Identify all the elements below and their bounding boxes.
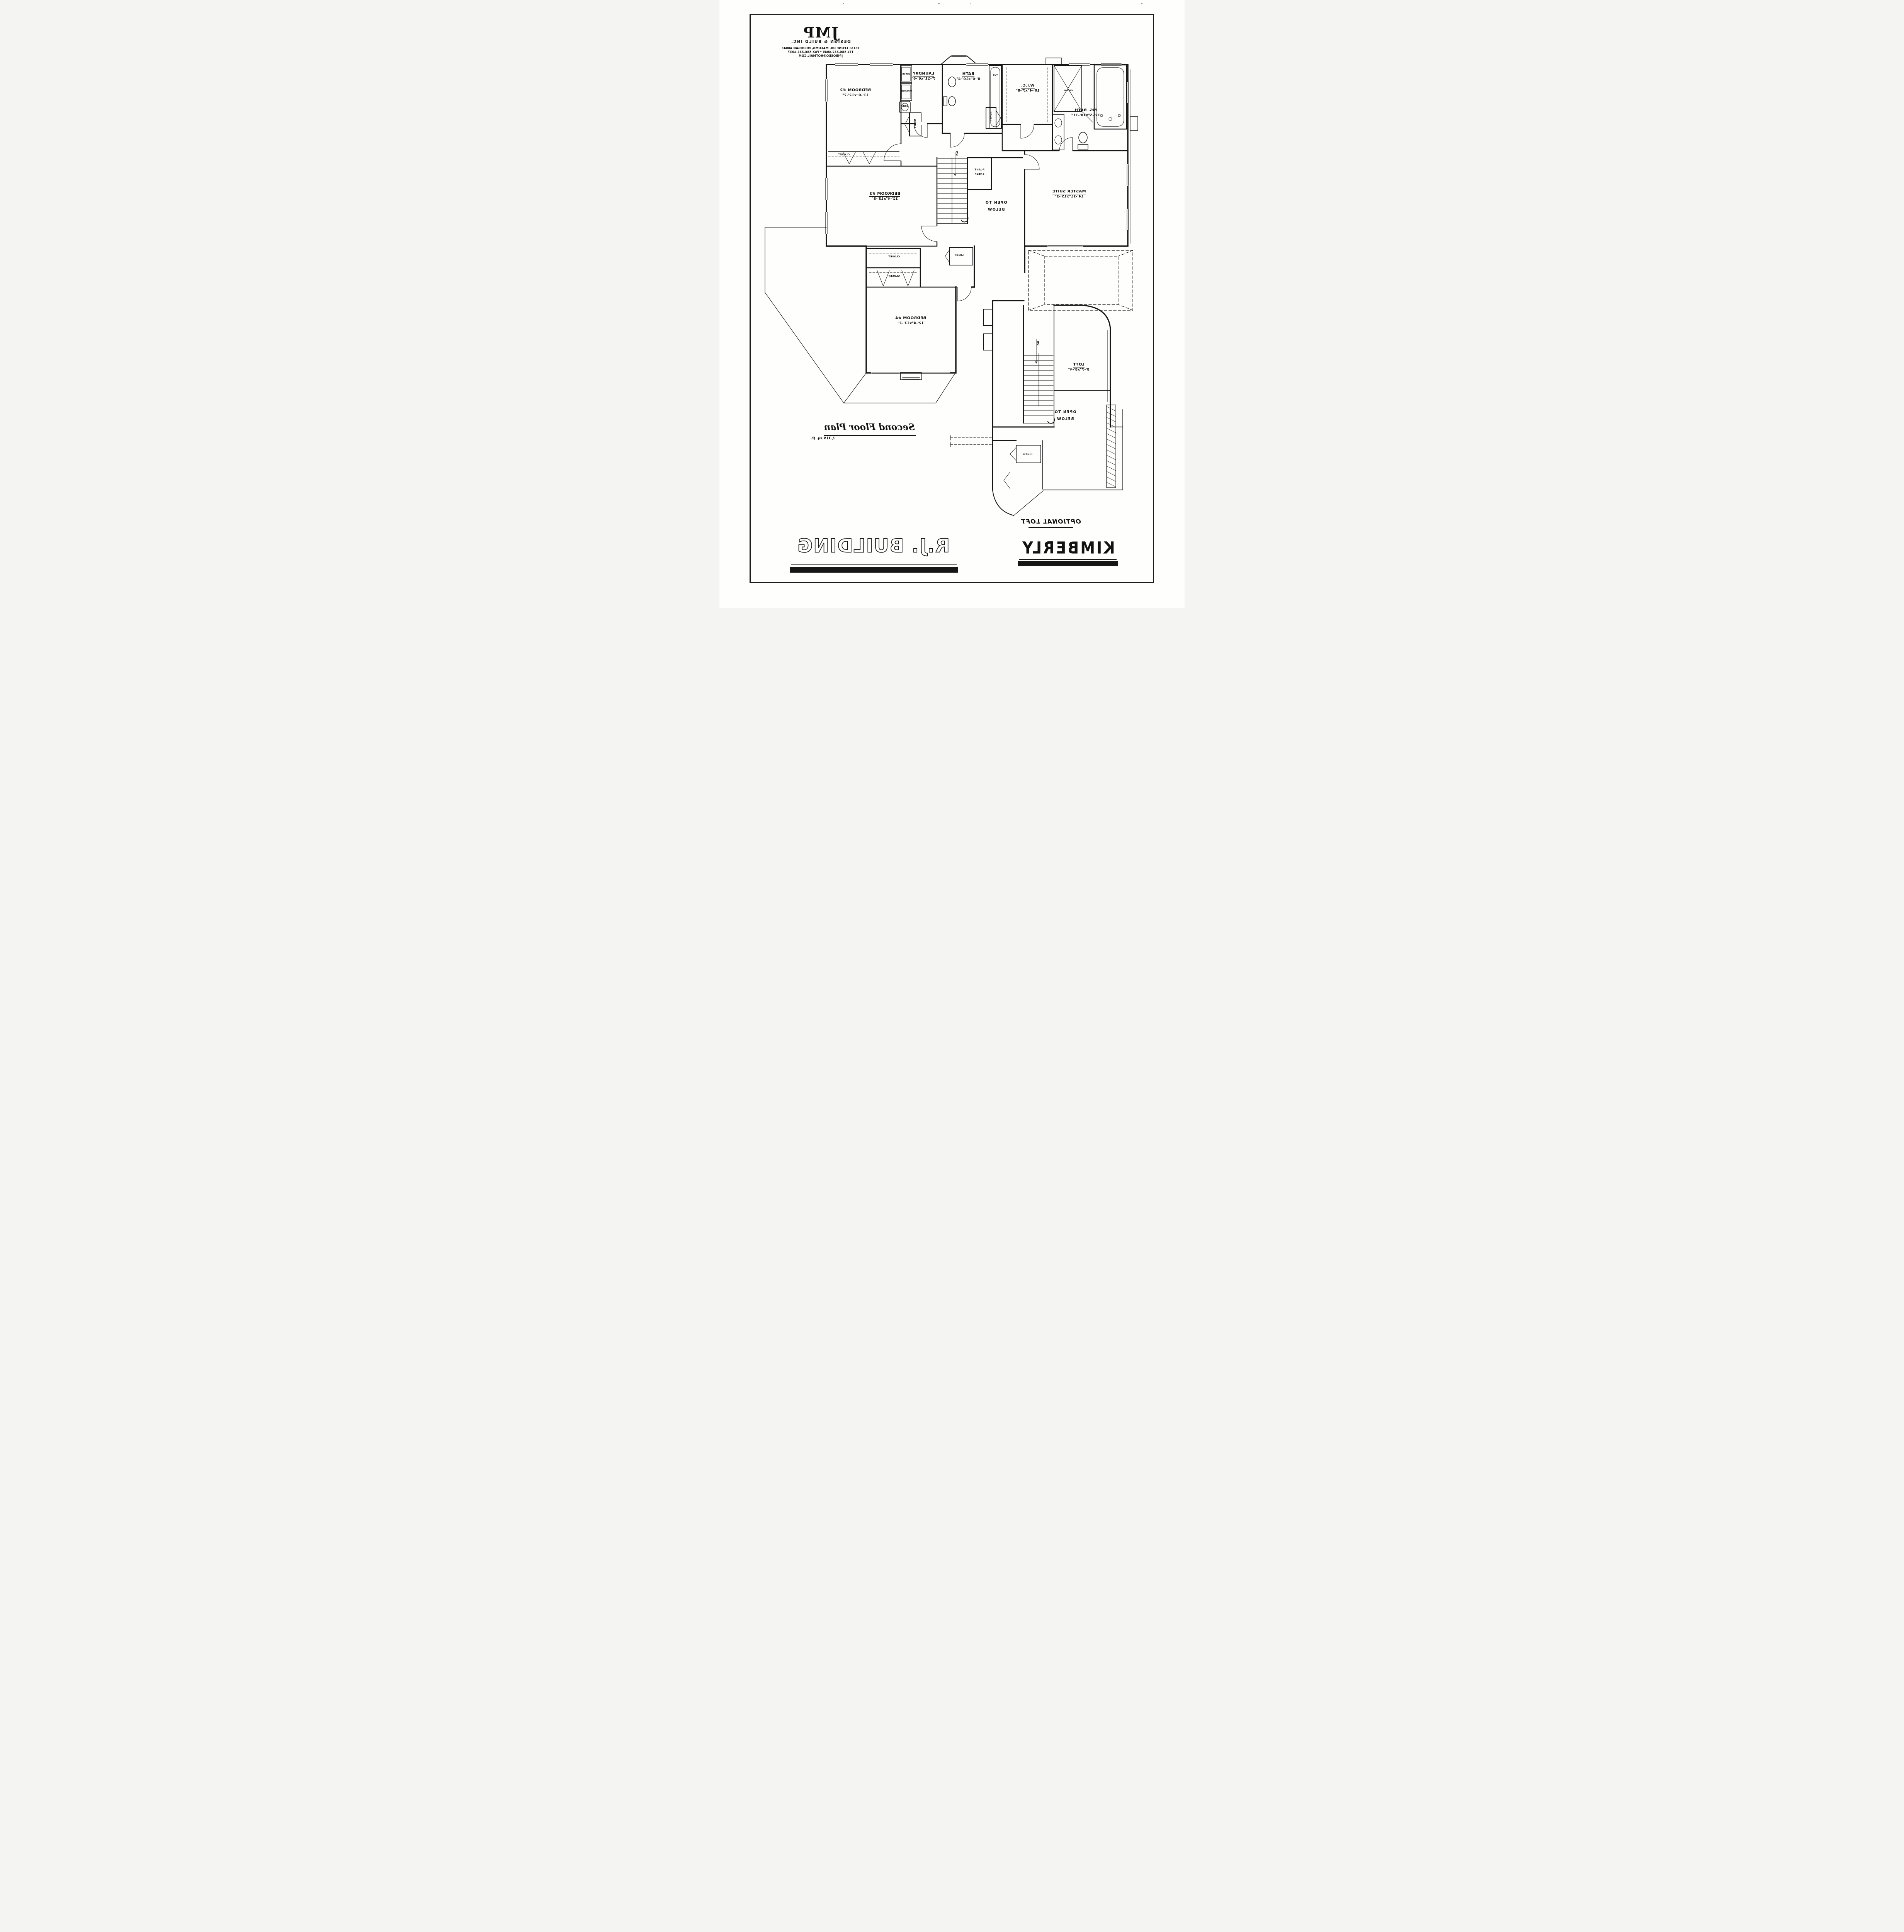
tub-label: TUB	[988, 74, 1003, 77]
open-to-line-loft: OPEN TO	[1042, 409, 1088, 416]
windows	[825, 55, 1129, 380]
bedroom3-dims: 12'-4"x13'-5"	[854, 197, 916, 201]
room-label-ms-bath: MS. BATH 12'-5"x10'-11"	[1059, 108, 1113, 117]
ms-bath-name: MS. BATH	[1074, 108, 1096, 113]
floor-plan-drawing	[719, 0, 1185, 608]
wic-dims: 10'-4"x7'-8"	[1005, 89, 1051, 93]
bath-dims: 8'-0"x10'-4"	[945, 77, 991, 81]
below-line: BELOW	[973, 206, 1019, 213]
dn-label-main: DN	[955, 148, 959, 159]
model-underline-thin	[1019, 559, 1117, 560]
master-name: MASTER SUITE	[1052, 189, 1086, 194]
optional-loft-underline	[1028, 527, 1073, 528]
right-bump-out	[1130, 117, 1138, 131]
main-exterior-walls	[826, 56, 1128, 373]
open-to-line: OPEN TO	[973, 199, 1019, 206]
laundry-name: LAUNDRY	[913, 71, 934, 77]
loft-plan	[950, 301, 1123, 515]
linen-label-wic-hall: LINEN	[989, 108, 992, 124]
closet-label-bed2: CLOSET	[828, 153, 859, 156]
wic-name: W.I.C.	[1021, 83, 1034, 88]
bedroom2-name: BEDROOM #2	[840, 88, 871, 93]
closet-label-lower: CLOSET	[879, 274, 909, 277]
plan-area: 1,319 sq. ft.	[800, 436, 846, 440]
open-to-below-loft: OPEN TO BELOW	[1042, 409, 1088, 423]
firm-email: JPIROSKO@HOTMAIL.COM	[763, 54, 879, 58]
room-label-bedroom2: BEDROOM #2 11'-0"x12'-7"	[824, 88, 886, 97]
laundry-dims: 7'-11"x6'-6"	[900, 77, 947, 81]
builder-name: R.J. BUILDING	[788, 535, 958, 557]
open-to-below-main: OPEN TO BELOW	[973, 199, 1019, 213]
room-label-bath: BATH 8'-0"x10'-4"	[945, 72, 991, 81]
dn-label-loft: DN	[1037, 337, 1040, 349]
ms-bath-dims: 12'-5"x10'-11"	[1059, 114, 1113, 117]
linen-label-bath-hall: LINEN	[913, 116, 916, 131]
plan-title-underline	[824, 435, 916, 436]
drawing-sheet: JMP DESIGN & BUILD INC. 16161 LEONE DR. …	[719, 0, 1185, 608]
room-label-bedroom4: BEDROOM #4 12'-4"x13'-2"	[880, 316, 942, 325]
bedroom4-name: BEDROOM #4	[895, 316, 926, 321]
room-label-master: MASTER SUITE 14'-11"x15'-2"	[1034, 189, 1104, 199]
shower-label: shower	[1057, 89, 1080, 92]
room-label-wic: W.I.C. 10'-4"x7'-8"	[1005, 83, 1051, 93]
plan-title: Second Floor Plan	[823, 422, 916, 432]
plant-shelf-label: PLANT SHELF	[967, 168, 991, 176]
linen-label-loft: LINEN	[1012, 453, 1043, 456]
sink-label: SINK	[898, 105, 913, 107]
builder-underline-thin	[791, 564, 957, 565]
loft-name: LOFT	[1073, 362, 1085, 367]
firm-tagline: DESIGN & BUILD INC.	[782, 39, 859, 44]
garage-roof-dashed	[1028, 250, 1133, 310]
bath-name: BATH	[962, 72, 974, 77]
room-label-loft: LOFT 8'-7"x8'-4"	[1056, 362, 1102, 372]
model-name: KIMBERLY	[1014, 538, 1122, 557]
closet-label-upper: CLOSET	[879, 255, 909, 258]
bedroom2-dims: 11'-0"x12'-7"	[824, 94, 886, 97]
bedroom4-dims: 12'-4"x13'-2"	[880, 321, 942, 325]
plant-shelf-line2: SHELF	[967, 172, 991, 176]
room-label-bedroom3: BEDROOM #3 12'-4"x13'-5"	[854, 192, 916, 201]
loft-dims: 8'-7"x8'-4"	[1056, 368, 1102, 372]
firm-address: 16161 LEONE DR. MACOMB, MICHIGAN 48042	[763, 46, 879, 50]
firm-phone: TEL 586.232.4045 * FAX 586.232.4037	[763, 50, 879, 54]
master-dims: 14'-11"x15'-2"	[1034, 195, 1104, 199]
linen-label-hall: LINEN	[947, 253, 971, 257]
roof-lines	[765, 227, 956, 403]
closet-rods	[828, 68, 1048, 272]
bedroom3-name: BEDROOM #3	[869, 192, 900, 197]
firm-logo: JMP	[790, 24, 852, 41]
plant-shelf-line1: PLANT	[967, 168, 991, 172]
optional-loft-title: OPTIONAL LOFT	[1020, 518, 1082, 525]
main-stairs	[937, 152, 968, 223]
washer-label: WASHER	[899, 90, 914, 92]
dryer-label: DRYER	[899, 73, 914, 75]
below-line-loft: BELOW	[1042, 416, 1088, 423]
builder-underline-bar	[790, 567, 958, 573]
model-underline-bar	[1018, 561, 1118, 566]
